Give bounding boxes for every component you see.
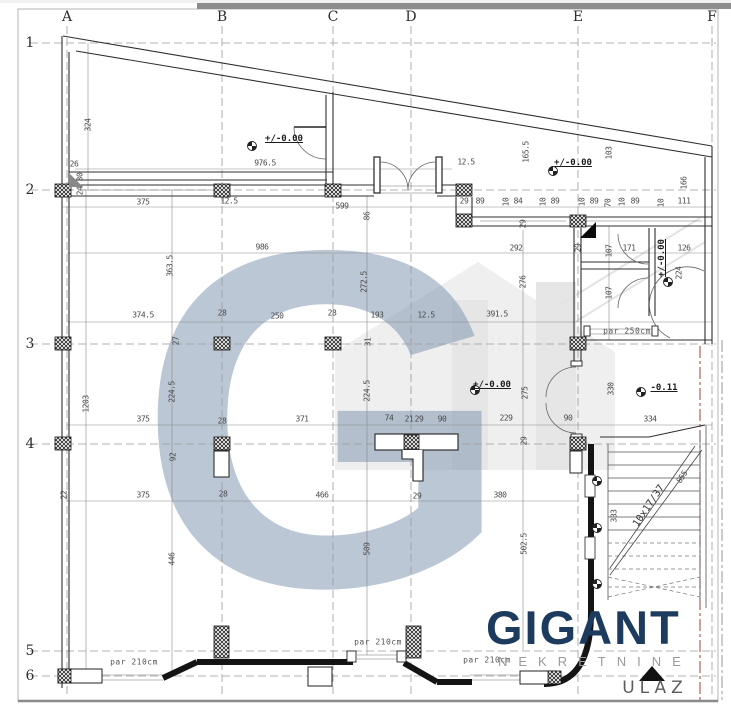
grid-column-label: A: [62, 9, 72, 25]
dimension-label: 224: [675, 267, 684, 280]
dimension-label: 275: [521, 387, 530, 400]
parapet-label: par 210cm: [463, 656, 511, 665]
dimension-label: 29: [519, 220, 528, 229]
dimension-label: 193: [371, 311, 384, 320]
grid-column-label: D: [405, 9, 416, 25]
dimension-label: 502.5: [520, 533, 529, 555]
parapet-label: par 210cm: [354, 638, 402, 647]
dimension-label: 89: [590, 197, 599, 206]
dimension-label: 29: [574, 244, 583, 253]
dimension-label: 74: [385, 414, 394, 423]
dimension-label: 976.5: [254, 159, 276, 168]
dimension-label: 12.5: [457, 158, 474, 167]
dimension-label: 363.5: [166, 255, 175, 277]
dimension-label: 29: [413, 492, 422, 501]
dimension-label: 107: [605, 245, 614, 258]
dimension-label: 22: [60, 491, 69, 500]
dimension-label: 224.5: [168, 381, 177, 403]
grid-row-label: 1: [26, 35, 35, 51]
dimension-label: 29: [415, 415, 424, 424]
dimension-label: 90: [438, 415, 447, 424]
dimension-label: 855: [675, 469, 690, 485]
grid-column-label: C: [328, 9, 339, 25]
parapet-label: par 250cm: [603, 327, 651, 336]
dimension-label: 12.5: [220, 197, 237, 206]
grid-row-label: 3: [26, 336, 35, 352]
dimension-label: 24: [76, 187, 85, 196]
level-annotation: -0.11: [650, 383, 677, 393]
dimension-label: 466: [316, 491, 329, 500]
top-strip-dark: [197, 3, 731, 9]
grid-column-label: B: [217, 9, 227, 25]
dimension-label: 10: [618, 198, 627, 207]
grid-row-label: 5: [26, 643, 35, 659]
dimension-label: 90: [564, 414, 573, 423]
dimension-label: 371: [296, 415, 309, 424]
dimension-label: 165.5: [522, 141, 531, 163]
dimension-label: 86: [363, 212, 372, 221]
dimension-label: 229: [500, 414, 513, 423]
level-annotation: +/-0.00: [473, 380, 511, 390]
dimension-label: 28: [218, 417, 227, 426]
dimension-label: 292: [510, 244, 523, 253]
grid-column-label: E: [573, 9, 583, 25]
dimension-label: 333: [610, 510, 619, 523]
level-annotation: +/-0.00: [657, 239, 667, 277]
dimension-label: 10: [502, 198, 511, 207]
dimension-label: 599: [336, 202, 349, 211]
dimension-label: 27: [172, 337, 181, 346]
dimension-label: 70: [604, 199, 613, 208]
dimension-label: 10: [657, 199, 666, 208]
dimension-label: 103: [605, 147, 614, 160]
dimension-label: 84: [514, 197, 523, 206]
dimension-label: 28: [328, 309, 337, 318]
parapet-label: par 210cm: [110, 658, 158, 667]
dimension-label: 171: [623, 244, 636, 253]
dimension-label: 89: [631, 197, 640, 206]
stair-annotation: 10x17/37: [631, 483, 667, 529]
grid-row-label: 2: [26, 182, 35, 198]
grid-row-label: 6: [26, 668, 35, 684]
dimension-label: 986: [256, 243, 269, 252]
dimension-label: 31: [364, 338, 373, 347]
dimension-label: 28: [219, 490, 228, 499]
dimension-label: 375: [137, 415, 150, 424]
dimension-label: 272.5: [360, 271, 369, 293]
dimension-label: 391.5: [486, 310, 508, 319]
dimension-label: 89: [476, 197, 485, 206]
dimension-label: 446: [168, 553, 177, 566]
dimension-label: 10: [539, 198, 548, 207]
dimension-label: 374.5: [132, 311, 154, 320]
dimension-label: 10: [578, 198, 587, 207]
grid-column-label: F: [707, 9, 717, 25]
dimension-label: 21: [405, 415, 414, 424]
dimension-label: 334: [644, 415, 657, 424]
dimension-label: 380: [494, 491, 507, 500]
dimension-label: 29: [460, 197, 469, 206]
dimension-label: 375: [137, 491, 150, 500]
dimension-label: 111: [678, 197, 691, 206]
dimension-label: 28: [218, 309, 227, 318]
dimension-label: 92: [169, 453, 178, 462]
dimension-label: 250: [271, 312, 284, 321]
dimension-label: 375: [137, 198, 150, 207]
floor-plan-page: G: [0, 0, 731, 706]
dimension-label: 224.5: [363, 380, 372, 402]
dimension-label: 26: [70, 160, 79, 169]
entrance-label: ULAZ: [622, 678, 688, 698]
dimension-label: 89: [551, 197, 560, 206]
dimension-label: 1203: [82, 395, 91, 412]
dimension-label: 29: [520, 437, 529, 446]
grid-row-label: 4: [26, 436, 35, 452]
dimension-label: 30: [76, 173, 85, 182]
dimension-label: 324: [84, 119, 93, 132]
dimension-label: 276: [519, 276, 528, 289]
dimension-label: 330: [607, 383, 616, 396]
annotations-layer: 324263024976.5+/-0.0012.5165.5+/-0.00103…: [0, 0, 731, 706]
level-annotation: +/-0.00: [554, 158, 592, 168]
dimension-label: 12.5: [417, 311, 434, 320]
level-annotation: +/-0.00: [265, 134, 303, 144]
dimension-label: 166: [680, 177, 689, 190]
dimension-label: 126: [678, 244, 691, 253]
dimension-label: 107: [605, 287, 614, 300]
dimension-label: 509: [363, 543, 372, 556]
